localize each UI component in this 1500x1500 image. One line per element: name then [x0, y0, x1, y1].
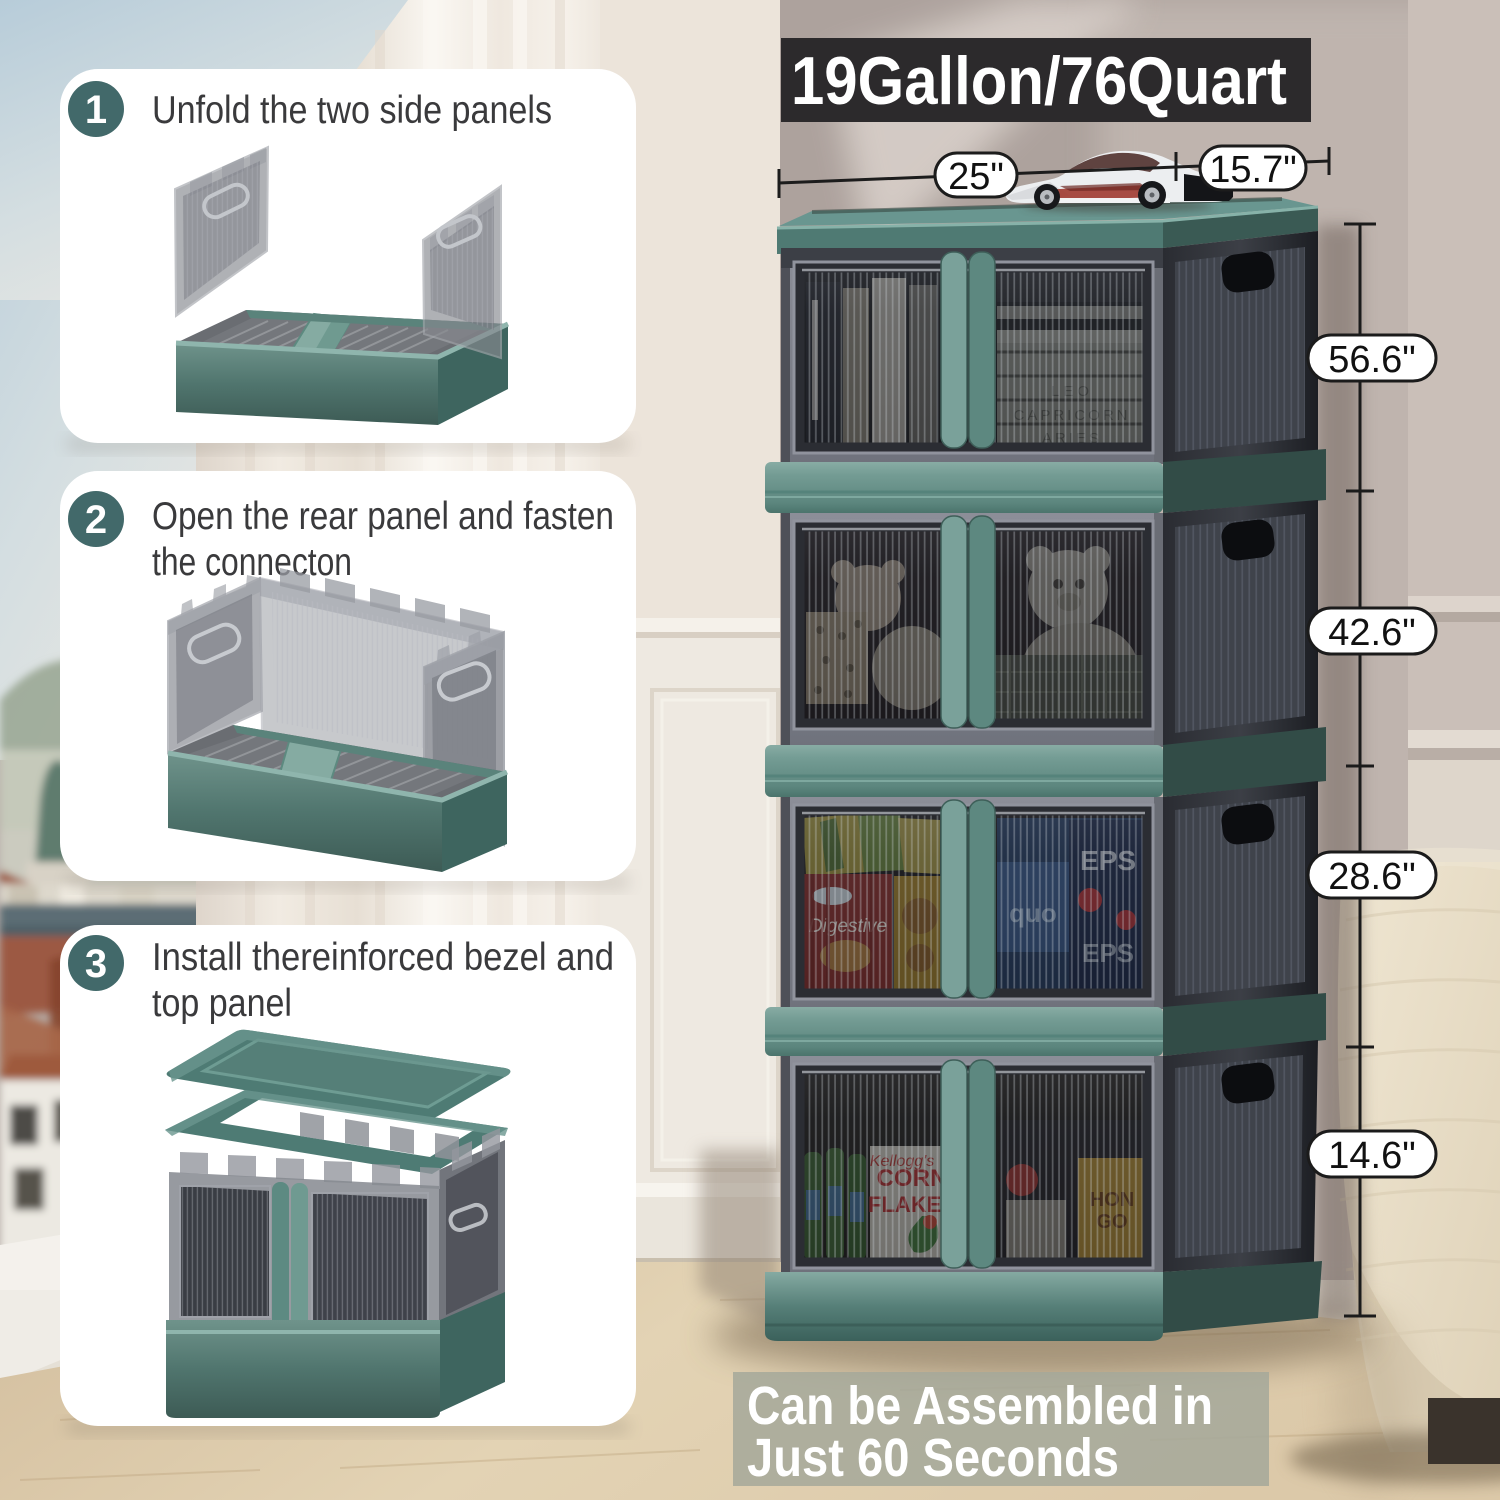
- svg-text:Unfold the two side panels: Unfold the two side panels: [152, 89, 552, 132]
- svg-text:19Gallon/76Quart: 19Gallon/76Quart: [791, 43, 1287, 119]
- svg-text:Install thereinforced bezel an: Install thereinforced bezel and: [152, 936, 614, 979]
- svg-text:3: 3: [85, 942, 107, 986]
- svg-text:Can be Assembled in: Can be Assembled in: [747, 1376, 1213, 1436]
- svg-text:28.6": 28.6": [1328, 856, 1415, 898]
- svg-text:42.6": 42.6": [1328, 612, 1415, 654]
- svg-text:2: 2: [85, 498, 107, 542]
- svg-text:25": 25": [948, 156, 1004, 198]
- svg-text:56.6": 56.6": [1328, 339, 1415, 381]
- svg-text:15.7": 15.7": [1209, 149, 1296, 191]
- svg-text:1: 1: [85, 88, 107, 132]
- svg-text:Open the rear panel and fasten: Open the rear panel and fasten: [152, 495, 614, 538]
- svg-text:14.6": 14.6": [1328, 1135, 1415, 1177]
- svg-text:Just 60 Seconds: Just 60 Seconds: [747, 1428, 1119, 1488]
- svg-text:top panel: top panel: [152, 982, 292, 1025]
